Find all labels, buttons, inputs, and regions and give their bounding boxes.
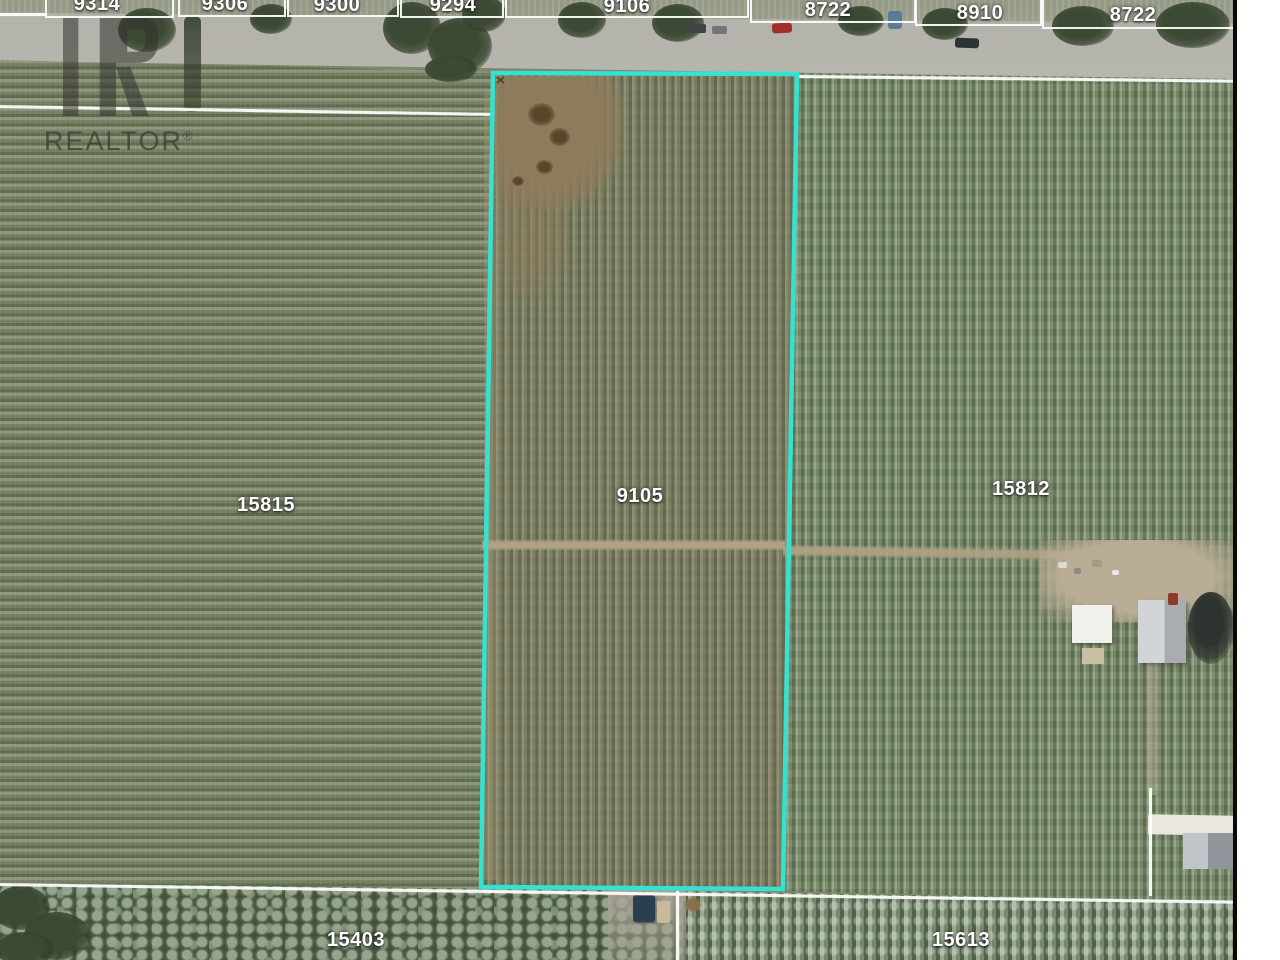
parcel-label-15815: 15815 xyxy=(237,494,295,517)
parcel-label-15403: 15403 xyxy=(327,929,385,952)
parcel-label-9105: 9105 xyxy=(617,485,664,508)
parcel-label: 9294 xyxy=(430,0,477,17)
aerial-map-screenshot: 9314 9306 9300 9294 9106 8722 8910 8722 … xyxy=(0,0,1280,960)
realtor-watermark-text: REALTOR® xyxy=(44,126,195,157)
realtor-logo-icon xyxy=(63,18,165,116)
white-margin xyxy=(1237,0,1280,960)
aerial-map-canvas: 9314 9306 9300 9294 9106 8722 8910 8722 … xyxy=(0,0,1233,960)
parcel-label-15613: 15613 xyxy=(932,929,990,952)
parcel-label-15812: 15812 xyxy=(992,478,1050,501)
realtor-watermark: REALTOR® xyxy=(40,14,200,164)
parcel-label: 8722 xyxy=(805,0,852,22)
parcel-label: 9300 xyxy=(314,0,361,17)
parcel-label: 8910 xyxy=(957,2,1004,25)
parcel-label: 9306 xyxy=(202,0,249,16)
parcel-label: 8722 xyxy=(1110,4,1157,27)
corner-survey-mark xyxy=(497,77,504,83)
highlighted-parcel-outline xyxy=(481,73,797,889)
parcel-label: 9106 xyxy=(604,0,651,18)
